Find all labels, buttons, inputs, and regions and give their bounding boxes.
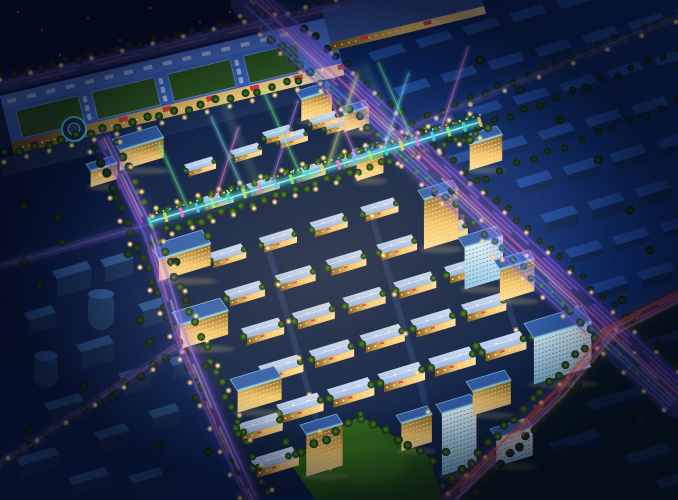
scene-svg (0, 0, 678, 500)
vignette (0, 0, 678, 500)
atmosphere-fx (0, 0, 678, 500)
aerial-night-rendering (0, 0, 678, 500)
